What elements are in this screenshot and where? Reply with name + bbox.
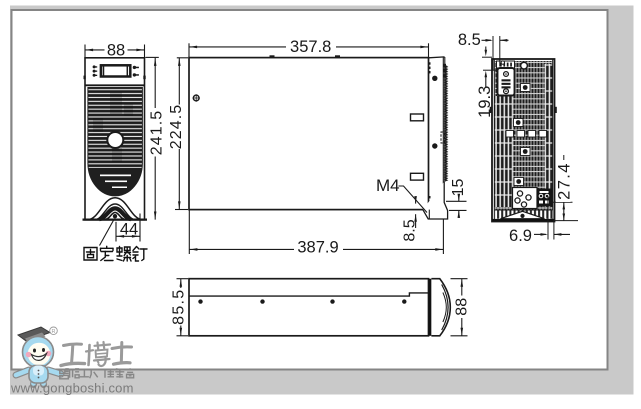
svg-text:R: R: [52, 329, 56, 335]
svg-text:85.5: 85.5: [170, 289, 187, 325]
svg-text:44: 44: [120, 220, 138, 238]
svg-text:88: 88: [453, 298, 470, 316]
svg-text:8.5: 8.5: [401, 219, 418, 241]
svg-text:27.4: 27.4: [556, 162, 574, 200]
svg-text:8.5: 8.5: [458, 31, 481, 49]
svg-text:19.3: 19.3: [476, 86, 494, 118]
svg-text:www.gongboshi.com: www.gongboshi.com: [10, 380, 134, 395]
svg-text:357.8: 357.8: [290, 38, 331, 56]
svg-text:224.5: 224.5: [168, 104, 185, 150]
svg-text:15: 15: [450, 179, 467, 197]
svg-text:241.5: 241.5: [148, 110, 165, 156]
svg-text:88: 88: [107, 42, 125, 60]
svg-text:387.9: 387.9: [297, 239, 338, 257]
svg-text:6.9: 6.9: [509, 227, 532, 245]
svg-text:M4: M4: [376, 176, 400, 195]
